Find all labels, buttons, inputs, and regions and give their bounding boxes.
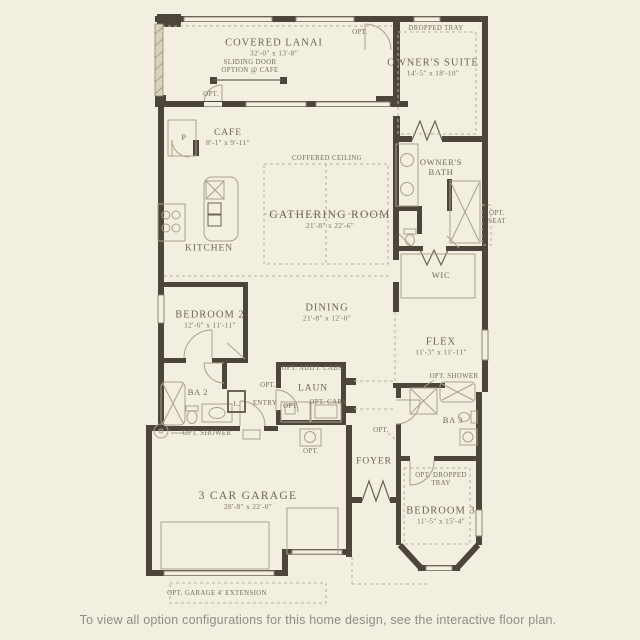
room-dims: 14'-5" x 18'-10" [387,70,479,79]
opt-label: OPT. [373,427,389,435]
owners-suite-door [412,121,442,140]
sliding-door-opening [246,102,306,107]
room-dims: 28'-8" x 22'-0" [199,503,298,512]
room-name: OWNER'S BATH [413,158,469,178]
room-dims: 32'-0" x 13'-8" [225,50,323,59]
room-label-bedroom-2: BEDROOM 2 12'-6" x 11'-11" [175,310,244,331]
room-label-garage: 3 CAR GARAGE 28'-8" x 22'-0" [199,490,298,512]
room-label-kitchen: KITCHEN [185,244,233,255]
wic-door [420,250,448,265]
room-dims: 8'-1" x 9'-11" [206,139,250,148]
dropped-tray-region [398,32,476,134]
ba2-sink-icon [209,408,225,419]
room-label-dining: DINING 21'-8" x 12'-0" [303,303,351,324]
opt-label: OPT. [260,382,276,390]
room-label-cafe: CAFE 8'-1" x 9'-11" [206,128,250,148]
room-dims: 12'-6" x 11'-11" [175,322,244,331]
coffered-ceiling-label: COFFERED CEILING [292,155,362,163]
room-label-flex: FLEX 11'-3" x 11'-11" [415,337,467,358]
room-label-covered-lanai: COVERED LANAI 32'-0" x 13'-8" [225,38,323,59]
opt-cabs-label: OPT. CABS [309,399,346,407]
room-name: FOYER [356,457,392,468]
room-label-ba-3: BA 3 [443,416,464,426]
caption-text: To view all option configurations for th… [80,613,557,627]
room-name: KITCHEN [185,244,233,255]
room-label-owners-bath: OWNER'S BATH [413,158,469,178]
room-label-ba-2: BA 2 [188,388,209,398]
range-icon [208,203,221,214]
room-name: LAUN [298,384,328,395]
front-door [362,481,390,501]
lanai-opt-door [365,24,391,50]
bedroom2-closet-door [227,343,245,359]
ba2-toilet-icon [187,411,197,424]
opt-door-label: OPT. [203,91,219,99]
toilet-nook-door [399,234,410,245]
room-dims: 11'-5" x 15'-4" [406,518,475,527]
ba3-sink-icon [463,432,473,442]
opt-addl-cabs-label: OPT. ADD'L CABS. [282,365,345,373]
garage-slab-right [287,508,338,554]
bedroom2-door [184,330,212,358]
garage-slab-left [161,522,269,569]
bay-walls [400,545,478,568]
room-name: BA 2 [188,388,209,398]
oven-icon [208,215,221,226]
opt-shower-label-ba2: OPT. SHOWER [183,430,232,438]
garage-door-left [164,571,274,576]
pantry-label: P [181,132,186,142]
burner-icon [172,224,180,232]
room-dims: 21'-8" x 12'-0" [303,315,351,324]
room-label-bedroom-3: BEDROOM 3 11'-5" x 15'-4" [406,506,475,527]
entry-step [243,430,260,439]
owners-toilet-icon [406,235,415,246]
linen-label: L. [234,401,241,409]
opt-dropped-tray-label: OPT. DROPPED TRAY [415,472,467,488]
dropped-tray-label: DROPPED TRAY [408,25,463,33]
room-name: WIC [432,271,451,281]
ba2-door [204,363,224,383]
floor-plan-page: COVERED LANAI 32'-0" x 13'-8" OWNER'S SU… [0,0,640,640]
owners-sink-icon [401,183,414,196]
owners-sink-icon [401,154,414,167]
room-label-foyer: FOYER [356,457,392,468]
island-sink [206,181,224,199]
walls [146,14,488,576]
opt-door-label: OPT. [352,29,368,37]
room-label-wic: WIC [432,271,451,281]
opt-shower-label-ba3: OPT. SHOWER [430,373,479,381]
screen-wall [155,24,163,96]
entry-label: ENTRY [253,400,277,408]
room-dims: 21'-8" x 22'-6" [269,222,390,231]
ba3-door [396,400,420,424]
sliding-door-note: SLIDING DOOR OPTION @ CAFE [221,59,278,75]
opt-label: OPT. [303,448,319,456]
owners-toilet-tank [404,229,416,234]
room-dims: 11'-3" x 11'-11" [415,349,467,358]
room-label-owners-suite: OWNER'S SUITE 14'-5" x 18'-10" [387,58,479,79]
pantry-door [172,140,189,157]
opt-label: OPT. [283,403,299,411]
room-label-gathering-room: GATHERING ROOM 21'-8" x 22'-6" [269,209,390,231]
room-label-laun: LAUN [298,384,328,395]
room-name: BA 3 [443,416,464,426]
opt-seat-label: OPT. SEAT [488,210,506,226]
burner-icon [172,211,180,219]
opt-garage-extension-label: OPT. GARAGE 4' EXTENSION [167,590,267,598]
